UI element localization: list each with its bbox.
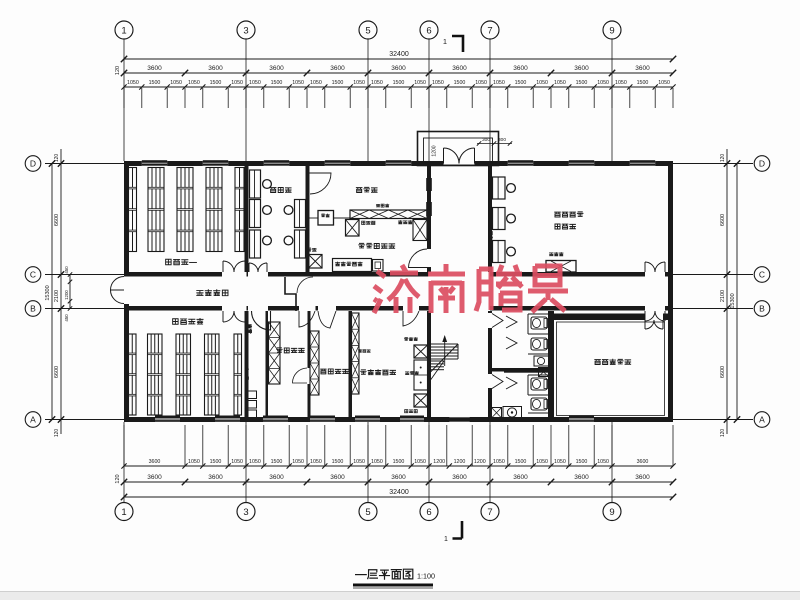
- svg-text:3600: 3600: [452, 474, 467, 481]
- svg-text:6600: 6600: [720, 214, 726, 226]
- svg-text:C: C: [759, 270, 765, 280]
- svg-text:1500: 1500: [332, 459, 344, 465]
- svg-text:1500: 1500: [210, 80, 222, 86]
- svg-text:7: 7: [487, 25, 492, 36]
- svg-text:1050: 1050: [597, 80, 609, 86]
- svg-text:1050: 1050: [536, 80, 548, 86]
- svg-text:3600: 3600: [574, 65, 589, 72]
- svg-text:1050: 1050: [310, 80, 322, 86]
- svg-text:1050: 1050: [170, 80, 182, 86]
- svg-text:1500: 1500: [393, 459, 405, 465]
- svg-text:C: C: [30, 270, 36, 280]
- svg-text:1050: 1050: [353, 80, 365, 86]
- svg-text:1050: 1050: [292, 80, 304, 86]
- svg-text:32400: 32400: [389, 51, 409, 58]
- svg-text:3600: 3600: [391, 65, 406, 72]
- svg-text:1050: 1050: [536, 459, 548, 465]
- svg-text:1050: 1050: [249, 459, 261, 465]
- svg-text:32400: 32400: [389, 489, 409, 496]
- svg-text:1050: 1050: [310, 459, 322, 465]
- svg-text:1050: 1050: [493, 459, 505, 465]
- svg-text:300: 300: [498, 137, 506, 143]
- svg-text:1050: 1050: [554, 80, 566, 86]
- svg-text:1500: 1500: [393, 80, 405, 86]
- svg-text:1050: 1050: [475, 80, 487, 86]
- svg-text:3600: 3600: [208, 65, 223, 72]
- svg-text:1: 1: [443, 37, 447, 46]
- svg-text:1500: 1500: [576, 459, 588, 465]
- svg-text:5: 5: [365, 25, 370, 36]
- svg-text:3600: 3600: [452, 65, 467, 72]
- svg-text:2100: 2100: [720, 290, 726, 302]
- svg-text:1050: 1050: [231, 80, 243, 86]
- svg-text:3600: 3600: [208, 474, 223, 481]
- svg-text:1050: 1050: [188, 80, 200, 86]
- svg-text:1050: 1050: [414, 80, 426, 86]
- svg-text:1050: 1050: [188, 459, 200, 465]
- svg-text:1200: 1200: [433, 459, 445, 465]
- svg-text:1200: 1200: [474, 459, 486, 465]
- svg-text:3: 3: [243, 25, 248, 36]
- svg-text:6600: 6600: [720, 366, 726, 378]
- svg-text:1050: 1050: [249, 80, 261, 86]
- svg-text:1500: 1500: [332, 80, 344, 86]
- svg-text:1500: 1500: [515, 80, 527, 86]
- svg-text:1: 1: [121, 25, 126, 36]
- svg-text:D: D: [30, 159, 36, 169]
- svg-text:6600: 6600: [54, 214, 60, 226]
- svg-text:B: B: [759, 304, 765, 314]
- svg-text:1050: 1050: [292, 459, 304, 465]
- svg-text:1500: 1500: [637, 80, 649, 86]
- svg-text:A: A: [759, 415, 765, 425]
- svg-text:A: A: [30, 415, 36, 425]
- svg-text:120: 120: [115, 474, 121, 483]
- svg-text:3600: 3600: [147, 474, 162, 481]
- svg-text:1200: 1200: [432, 145, 438, 156]
- svg-text:3600: 3600: [330, 474, 345, 481]
- svg-text:1500: 1500: [149, 80, 161, 86]
- svg-text:1050: 1050: [554, 459, 566, 465]
- svg-text:1050: 1050: [414, 459, 426, 465]
- svg-text:2100: 2100: [54, 290, 60, 302]
- svg-text:3600: 3600: [391, 474, 406, 481]
- svg-text:1200: 1200: [454, 459, 466, 465]
- svg-text:7: 7: [487, 507, 492, 518]
- svg-text:3600: 3600: [637, 459, 649, 465]
- svg-text:1050: 1050: [127, 80, 139, 86]
- svg-text:120: 120: [54, 429, 60, 438]
- svg-text:3600: 3600: [149, 459, 161, 465]
- svg-text:1500: 1500: [271, 80, 283, 86]
- svg-text:3600: 3600: [147, 65, 162, 72]
- svg-text:3600: 3600: [635, 474, 650, 481]
- svg-text:6: 6: [426, 507, 431, 518]
- svg-text:1050: 1050: [371, 80, 383, 86]
- svg-text:1500: 1500: [515, 459, 527, 465]
- svg-text:120: 120: [720, 154, 726, 163]
- svg-text:1050: 1050: [371, 459, 383, 465]
- svg-text:1500: 1500: [576, 80, 588, 86]
- svg-text:1200: 1200: [64, 290, 69, 300]
- svg-text:120: 120: [115, 66, 121, 75]
- svg-text:D: D: [759, 159, 765, 169]
- svg-text:9: 9: [609, 25, 614, 36]
- svg-text:6600: 6600: [54, 366, 60, 378]
- svg-text:5: 5: [365, 507, 370, 518]
- svg-text:1:100: 1:100: [417, 572, 435, 581]
- svg-text:6: 6: [426, 25, 431, 36]
- svg-text:1500: 1500: [454, 80, 466, 86]
- svg-text:3600: 3600: [574, 474, 589, 481]
- svg-text:3600: 3600: [330, 65, 345, 72]
- svg-text:1050: 1050: [615, 80, 627, 86]
- svg-text:1050: 1050: [597, 459, 609, 465]
- svg-text:1050: 1050: [231, 459, 243, 465]
- svg-text:1: 1: [121, 507, 126, 518]
- svg-text:3600: 3600: [513, 474, 528, 481]
- svg-text:120: 120: [720, 429, 726, 438]
- svg-text:3600: 3600: [513, 65, 528, 72]
- svg-text:3: 3: [243, 507, 248, 518]
- svg-text:300: 300: [482, 137, 490, 143]
- svg-text:1: 1: [444, 536, 448, 543]
- svg-text:15300: 15300: [730, 293, 736, 308]
- svg-text:1050: 1050: [432, 80, 444, 86]
- svg-text:1050: 1050: [658, 80, 670, 86]
- svg-text:B: B: [30, 304, 36, 314]
- svg-text:9: 9: [609, 507, 614, 518]
- svg-text:3600: 3600: [269, 474, 284, 481]
- svg-text:450: 450: [64, 266, 69, 274]
- svg-text:15300: 15300: [45, 285, 51, 300]
- svg-text:3600: 3600: [635, 65, 650, 72]
- svg-text:120: 120: [54, 154, 60, 163]
- svg-text:1050: 1050: [493, 80, 505, 86]
- svg-text:3600: 3600: [269, 65, 284, 72]
- svg-text:1050: 1050: [353, 459, 365, 465]
- svg-text:1500: 1500: [271, 459, 283, 465]
- svg-text:1500: 1500: [210, 459, 222, 465]
- svg-text:450: 450: [64, 314, 69, 322]
